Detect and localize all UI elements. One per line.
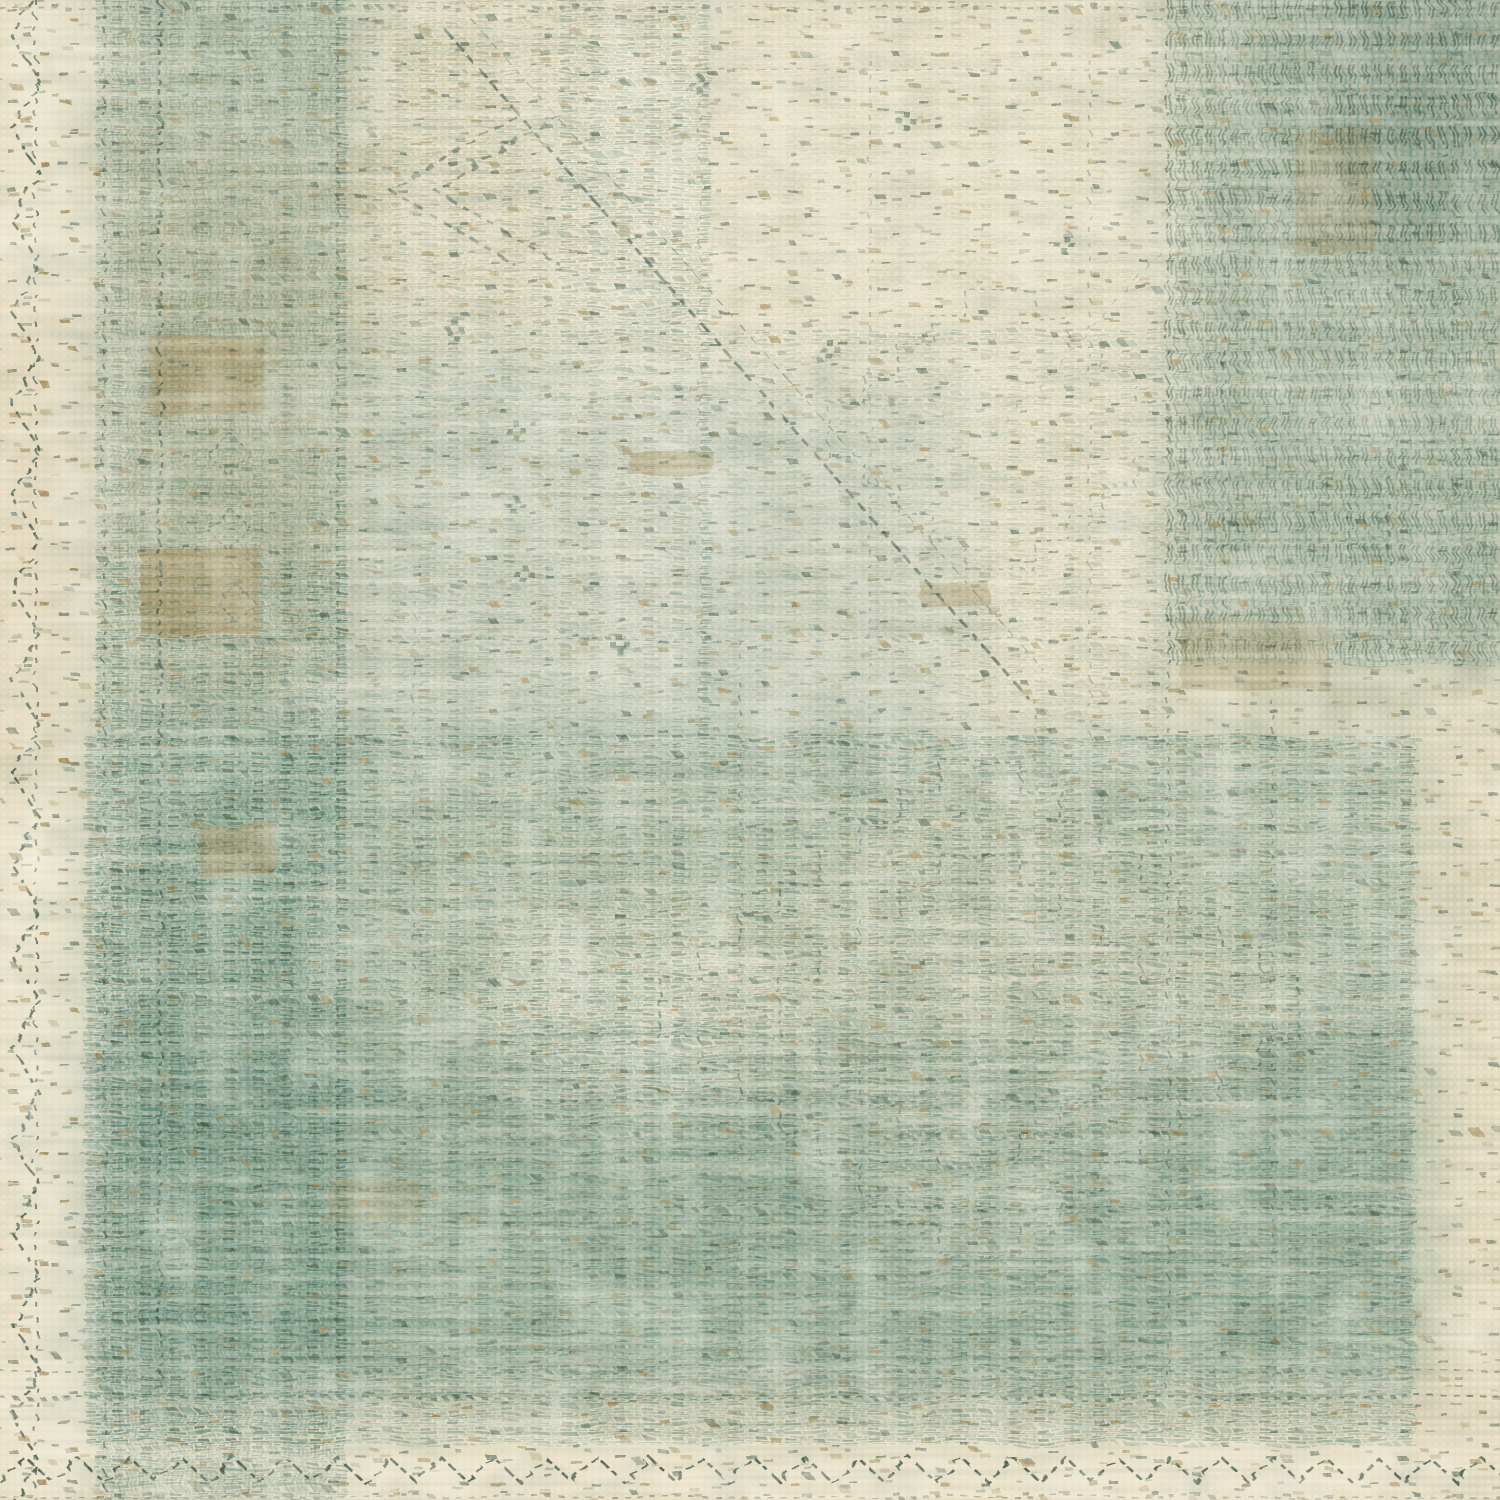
texture-overlays (0, 0, 1500, 1500)
rug-photo: Distressed flat-woven rug in seafoam and… (0, 0, 1500, 1500)
rug-canvas: Close-up corner detail of a vintage-styl… (0, 0, 1500, 1500)
